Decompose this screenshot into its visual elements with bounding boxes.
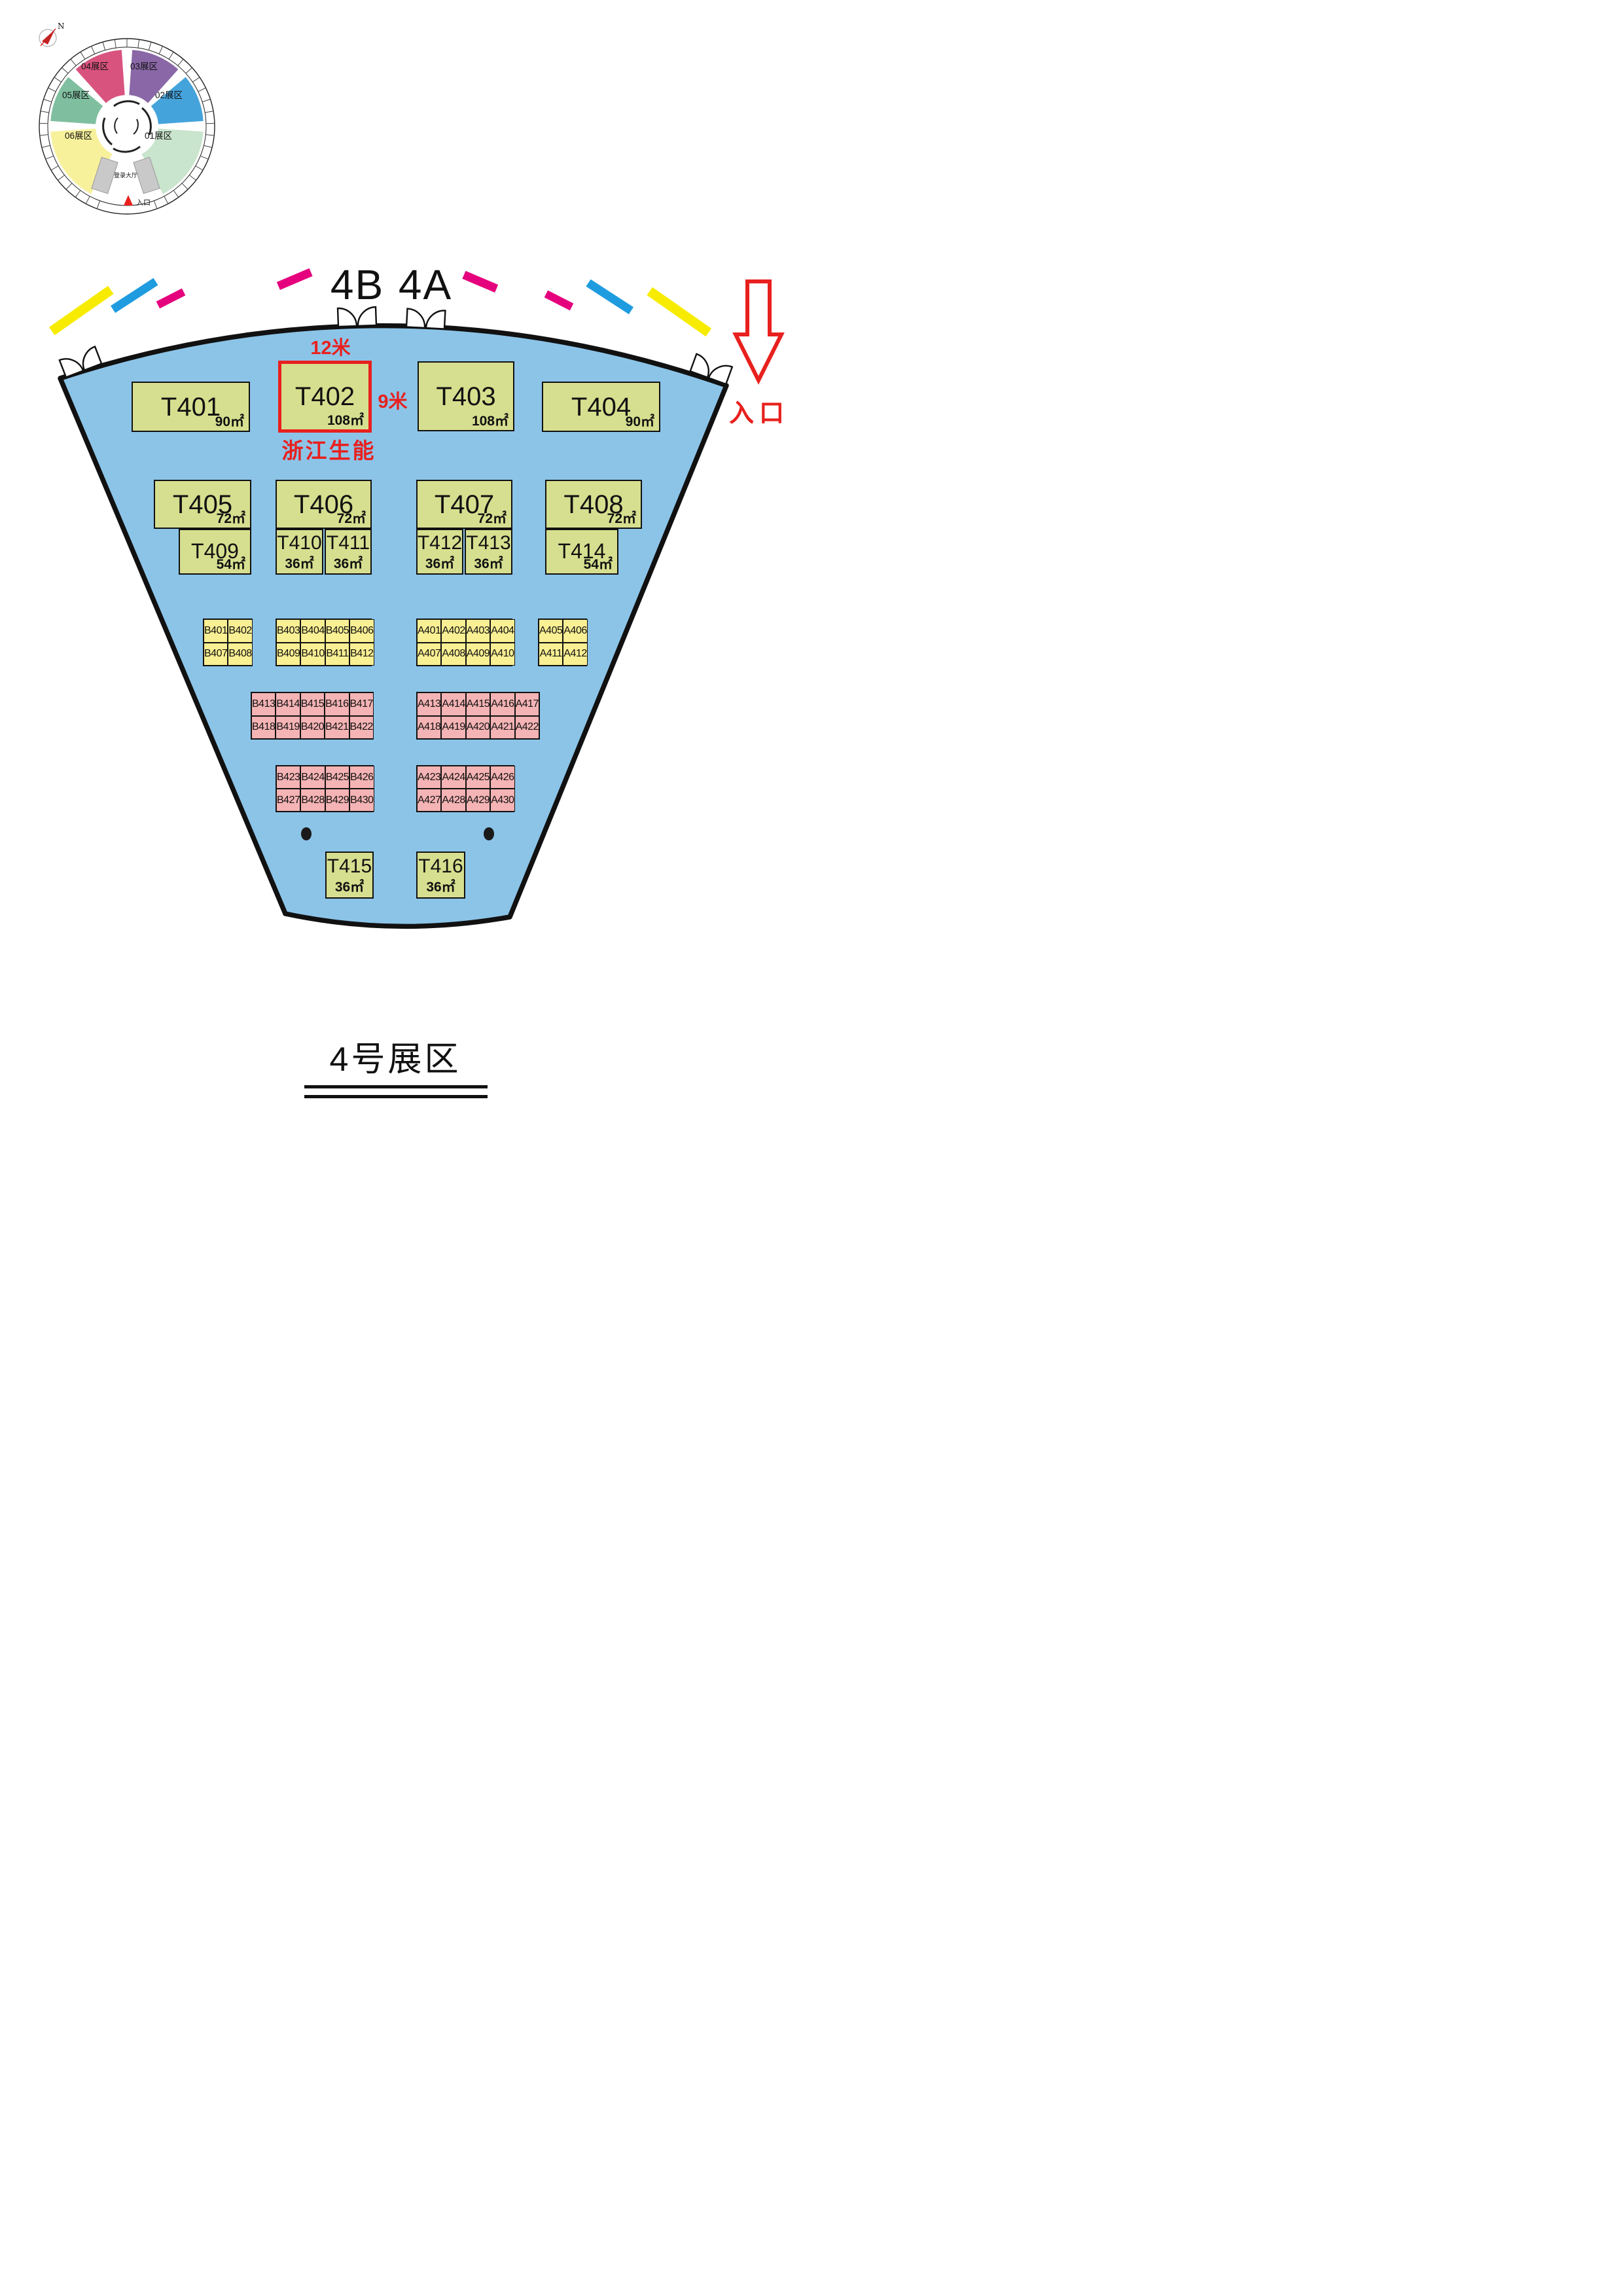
cell-B422: B422 (349, 716, 374, 740)
cell-A421: A421 (490, 716, 514, 740)
cell-A426: A426 (490, 766, 514, 789)
booth-T407: T40772㎡ (416, 480, 512, 529)
cell-B421: B421 (325, 716, 349, 740)
cell-B412: B412 (349, 643, 374, 666)
highlight-company-label: 浙江生能 (268, 433, 389, 465)
booth-T412: T41236㎡ (416, 529, 463, 575)
page-title: 4号展区 (264, 1031, 526, 1081)
floorplan-page: N 01展区02展区03展区04展区05展区06展区 登录大厅 入口 (0, 0, 811, 1148)
cell-A419: A419 (441, 716, 465, 740)
cell-B410: B410 (300, 643, 325, 666)
cell-A424: A424 (441, 766, 465, 789)
booth-label: T411 (327, 533, 370, 554)
booth-area: 36㎡ (474, 557, 503, 571)
hall-canvas (0, 0, 811, 1148)
cell-B423: B423 (276, 766, 300, 789)
entrance-arrow-icon (736, 281, 781, 380)
cell-A429: A429 (466, 789, 490, 812)
booth-area: 72㎡ (217, 512, 245, 526)
cell-A420: A420 (466, 716, 490, 740)
title-underline-1 (304, 1085, 488, 1088)
cell-block-b-4x2: B423B424B425B426B427B428B429B430 (276, 765, 374, 812)
booth-area: 72㎡ (478, 512, 507, 526)
cell-A425: A425 (466, 766, 490, 789)
cell-A411: A411 (539, 643, 563, 666)
cell-block-b-mid-4x2: B403B404B405B406B409B410B411B412 (276, 619, 372, 666)
booth-label: T413 (466, 533, 510, 554)
title-underline-2 (304, 1095, 488, 1098)
cell-B429: B429 (325, 789, 349, 812)
column-dot-left (301, 827, 312, 840)
cell-B411: B411 (325, 643, 349, 666)
booth-label: T402 (295, 383, 355, 410)
booth-area: 108㎡ (472, 414, 508, 428)
cell-A422: A422 (515, 716, 539, 740)
cell-A408: A408 (441, 643, 465, 666)
booth-label: T403 (436, 383, 495, 410)
door-icon-gate-4b (338, 307, 376, 327)
cell-B417: B417 (349, 692, 374, 716)
booth-area: 54㎡ (217, 558, 245, 571)
booth-area: 54㎡ (584, 558, 613, 571)
cell-A402: A402 (441, 619, 465, 643)
booth-T415: T41536㎡ (325, 852, 374, 899)
decor-bar-yellow-left (49, 286, 114, 335)
cell-B404: B404 (300, 619, 325, 643)
gate-label-4a: 4A (383, 263, 468, 306)
cell-B402: B402 (228, 619, 252, 643)
booth-area: 36㎡ (426, 880, 455, 894)
booth-T414: T41454㎡ (545, 529, 618, 575)
cell-B419: B419 (276, 716, 300, 740)
decor-bar-magenta-left (156, 289, 186, 309)
booth-area: 72㎡ (607, 512, 636, 526)
cell-A428: A428 (441, 789, 465, 812)
cell-B418: B418 (251, 716, 276, 740)
column-dot-right (484, 827, 494, 840)
booth-label: T404 (571, 393, 631, 421)
cell-B428: B428 (300, 789, 325, 812)
cell-A405: A405 (539, 619, 563, 643)
decor-bar-yellow-right (647, 287, 711, 336)
booth-T405: T40572㎡ (154, 480, 251, 529)
cell-A412: A412 (563, 643, 587, 666)
booth-T410: T41036㎡ (276, 529, 323, 575)
booth-area: 90㎡ (626, 415, 654, 429)
cell-B407: B407 (204, 643, 228, 666)
entrance-label: 入口 (720, 393, 798, 429)
highlight-height-label: 9米 (366, 386, 419, 414)
cell-A413: A413 (417, 692, 441, 716)
booth-label: T412 (418, 533, 462, 554)
cell-B415: B415 (300, 692, 325, 716)
cell-A417: A417 (515, 692, 539, 716)
booth-T416: T41636㎡ (416, 852, 465, 899)
cell-B416: B416 (325, 692, 349, 716)
decor-bar-magenta-right (544, 291, 574, 311)
cell-A407: A407 (417, 643, 441, 666)
cell-block-a-4x2: A423A424A425A426A427A428A429A430 (416, 765, 514, 812)
cell-A427: A427 (417, 789, 441, 812)
booth-area: 90㎡ (215, 415, 244, 429)
cell-block-a-right-2x2: A405A406A411A412 (538, 619, 587, 666)
booth-label: T410 (277, 533, 321, 554)
cell-B425: B425 (325, 766, 349, 789)
cell-B424: B424 (300, 766, 325, 789)
booth-T413: T41336㎡ (465, 529, 512, 575)
cell-A423: A423 (417, 766, 441, 789)
cell-block-a-mid-4x2: A401A402A403A404A407A408A409A410 (416, 619, 512, 666)
cell-block-a-5x2: A413A414A415A416A417A418A419A420A421A422 (416, 692, 540, 740)
decor-bar-magenta-4b (277, 268, 313, 290)
booth-label: T415 (327, 856, 372, 877)
cell-B406: B406 (349, 619, 374, 643)
booth-area: 36㎡ (425, 557, 454, 571)
cell-B409: B409 (276, 643, 300, 666)
cell-A414: A414 (441, 692, 465, 716)
cell-A416: A416 (490, 692, 514, 716)
cell-B427: B427 (276, 789, 300, 812)
decor-bar-blue-right (586, 279, 633, 314)
booth-T404: T40490㎡ (542, 382, 660, 432)
booth-T402: T402108㎡ (278, 361, 372, 433)
cell-A409: A409 (466, 643, 490, 666)
booth-T411: T41136㎡ (325, 529, 372, 575)
booth-T403: T403108㎡ (418, 361, 514, 431)
cell-A415: A415 (466, 692, 490, 716)
cell-A403: A403 (466, 619, 490, 643)
cell-block-b-5x2: B413B414B415B416B417B418B419B420B421B422 (251, 692, 374, 740)
highlight-width-label: 12米 (298, 332, 363, 360)
cell-A418: A418 (417, 716, 441, 740)
cell-A406: A406 (563, 619, 587, 643)
booth-area: 108㎡ (327, 414, 364, 427)
door-icon-gate-4a (406, 309, 445, 329)
booth-T401: T40190㎡ (132, 382, 250, 432)
cell-B408: B408 (228, 643, 252, 666)
cell-B403: B403 (276, 619, 300, 643)
cell-A430: A430 (490, 789, 514, 812)
booth-area: 72㎡ (337, 512, 366, 526)
cell-B413: B413 (251, 692, 276, 716)
cell-B420: B420 (300, 716, 325, 740)
booth-area: 36㎡ (334, 557, 363, 571)
cell-A410: A410 (490, 643, 514, 666)
cell-B405: B405 (325, 619, 349, 643)
booth-label: T401 (161, 393, 221, 421)
booth-area: 36㎡ (335, 880, 364, 894)
cell-block-b-left-2x2: B401B402B407B408 (203, 619, 253, 666)
booth-area: 36㎡ (285, 557, 313, 571)
booth-T409: T40954㎡ (179, 529, 251, 575)
cell-B430: B430 (349, 789, 374, 812)
cell-A404: A404 (490, 619, 514, 643)
cell-B414: B414 (276, 692, 300, 716)
cell-A401: A401 (417, 619, 441, 643)
cell-B401: B401 (204, 619, 228, 643)
decor-bar-blue-left (111, 278, 158, 313)
booth-T408: T40872㎡ (545, 480, 642, 529)
booth-T406: T40672㎡ (276, 480, 372, 529)
booth-label: T416 (418, 856, 463, 877)
cell-B426: B426 (349, 766, 374, 789)
